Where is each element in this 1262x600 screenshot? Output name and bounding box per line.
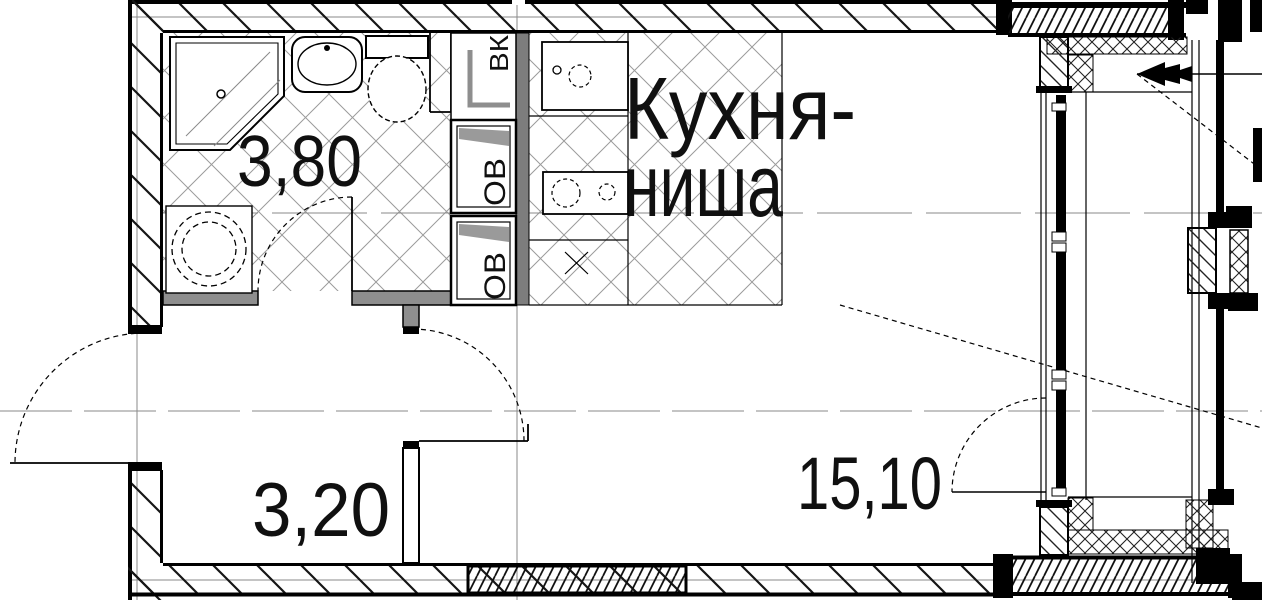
hall-partition-lower [403, 448, 419, 563]
floor-plan-drawing: ВК ОВ ОВ [0, 0, 1262, 600]
bathroom-area-label: 3,80 [237, 122, 362, 202]
hall-partition-top-stub [403, 305, 419, 327]
entrance-door-swing [15, 333, 145, 463]
ov-shaft-bottom-label: ОВ [479, 252, 512, 300]
facade-sash-bar [1216, 40, 1224, 212]
room-door-leaf [419, 424, 528, 441]
toilet-bowl [368, 56, 426, 122]
facade-pier [1188, 228, 1216, 293]
hallway-area-label: 3,20 [252, 468, 390, 553]
room-door-swing [412, 329, 524, 441]
toilet-cistern [366, 36, 428, 58]
bathroom-wall-right-segment [352, 291, 453, 305]
kitchen-label-line2: ниша [624, 136, 783, 235]
duct-wall-strip [516, 33, 529, 305]
balcony-door-closed [1056, 390, 1066, 488]
ov-shaft-top-label: ОВ [479, 158, 512, 206]
shower-drain [217, 90, 225, 98]
left-wall-upper [128, 0, 163, 327]
window-pier-top [1040, 37, 1068, 90]
balcony-door-swing [952, 398, 1046, 492]
living-room-area-label: 15,10 [797, 442, 942, 525]
window-pier-bottom [1040, 507, 1068, 555]
washing-machine [166, 206, 252, 293]
top-wall [128, 0, 1008, 33]
vk-shaft-label: ВК [484, 35, 514, 72]
bottom-wall-dense-segment [468, 566, 686, 593]
window-glazing-bar [1056, 95, 1066, 232]
balcony-top-wall [1008, 4, 1182, 36]
kitchen-sink [542, 42, 628, 110]
sink-faucet [324, 45, 330, 51]
floor-plan: ВК ОВ ОВ [0, 0, 1262, 600]
